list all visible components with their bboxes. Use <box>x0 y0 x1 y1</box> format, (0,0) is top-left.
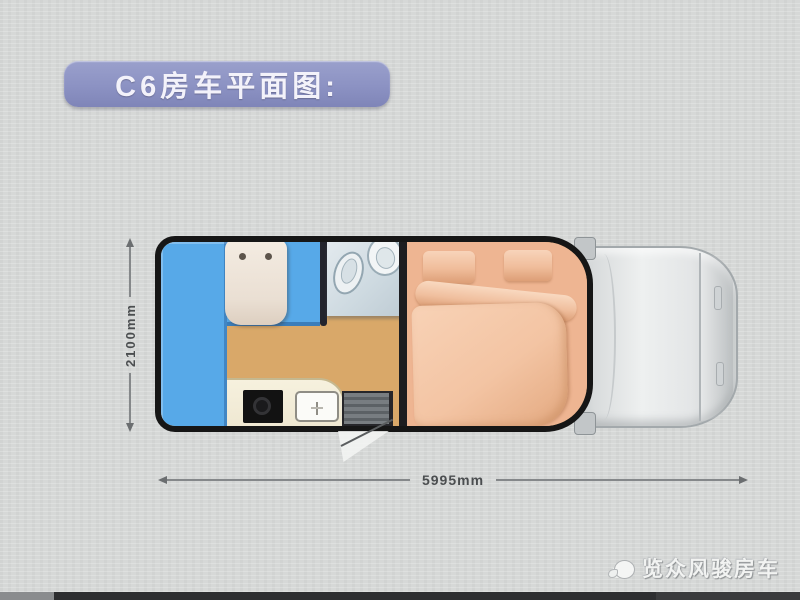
kitchen-counter <box>227 378 345 426</box>
pillow <box>504 250 552 281</box>
bathroom-sink <box>367 242 402 276</box>
double-bed <box>407 242 587 426</box>
arrow-left-icon <box>158 476 167 484</box>
faucet <box>311 407 323 409</box>
door-leaf <box>337 431 391 462</box>
dimension-line <box>129 373 131 423</box>
bathroom-wall <box>320 242 327 326</box>
burner-ring <box>253 397 271 415</box>
height-dimension-label: 2100mm <box>123 303 138 367</box>
cooktop <box>243 390 283 423</box>
sink-bowl <box>373 245 397 271</box>
page-title: C6房车平面图: <box>115 63 339 105</box>
bed-partition-wall <box>399 242 407 426</box>
length-dimension-label: 5995mm <box>422 472 484 488</box>
horse-cloud-logo-icon <box>608 556 635 580</box>
watermark: 览众风骏房车 <box>608 553 780 583</box>
dimension-line <box>129 247 131 297</box>
cab-windshield-line <box>592 254 616 420</box>
dimension-line <box>496 479 739 481</box>
pillow <box>423 251 475 283</box>
dinette-seat <box>225 239 287 325</box>
toilet <box>328 248 369 299</box>
kitchen-sink <box>295 391 339 422</box>
arrow-right-icon <box>739 476 748 484</box>
cab-detail <box>716 362 724 386</box>
title-banner: C6房车平面图: <box>64 61 390 107</box>
entry-door-swing <box>337 431 391 462</box>
height-dimension: 2100mm <box>121 238 139 432</box>
seat-button <box>265 253 272 260</box>
floorplan <box>155 236 593 432</box>
side-sofa <box>161 242 227 426</box>
bathroom <box>327 242 402 316</box>
toilet-lid <box>338 256 360 285</box>
duvet <box>411 302 568 426</box>
length-dimension: 5995mm <box>158 471 748 489</box>
watermark-label: 览众风骏房车 <box>642 553 780 583</box>
seat-button <box>239 253 246 260</box>
bottom-bar <box>0 592 800 600</box>
truck-cab <box>582 246 738 428</box>
page-background: C6房车平面图: 2100mm <box>0 0 800 600</box>
entry-step <box>342 391 393 426</box>
cab-front-bumper <box>699 253 733 421</box>
arrow-down-icon <box>126 423 134 432</box>
cab-detail <box>714 286 722 310</box>
arrow-up-icon <box>126 238 134 247</box>
dimension-line <box>167 479 410 481</box>
